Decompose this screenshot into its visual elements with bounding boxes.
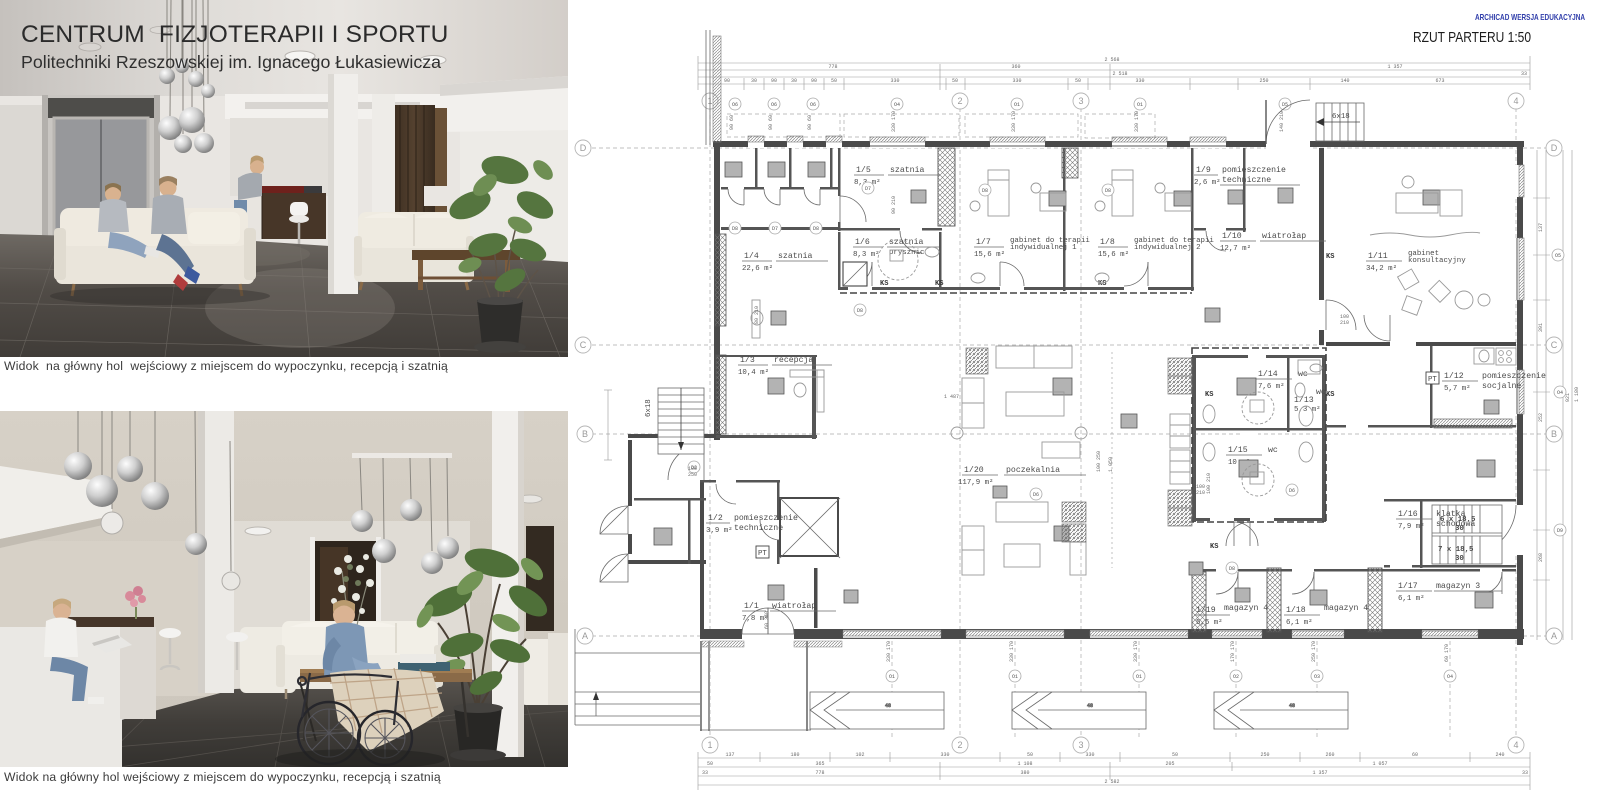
svg-text:330: 330	[1085, 752, 1094, 758]
svg-text:50: 50	[831, 78, 837, 84]
svg-text:250: 250	[688, 472, 697, 478]
svg-text:330 170: 330 170	[1133, 641, 1139, 662]
svg-text:C: C	[580, 340, 587, 350]
svg-text:O1: O1	[1136, 674, 1142, 680]
svg-text:1 057: 1 057	[1372, 761, 1387, 767]
svg-text:2: 2	[957, 740, 962, 750]
svg-text:KS: KS	[935, 280, 943, 288]
svg-text:1: 1	[707, 740, 712, 750]
svg-text:33: 33	[702, 770, 708, 776]
svg-text:1/6: 1/6	[855, 237, 870, 247]
svg-text:wiatrołap: wiatrołap	[772, 601, 816, 611]
svg-text:50: 50	[707, 761, 713, 767]
svg-text:1/19: 1/19	[1196, 605, 1216, 615]
svg-text:30: 30	[791, 78, 797, 84]
svg-text:wc: wc	[1268, 446, 1278, 455]
svg-text:673: 673	[1435, 78, 1444, 84]
svg-text:2,6 m²: 2,6 m²	[1194, 178, 1221, 187]
svg-text:102: 102	[855, 752, 864, 758]
svg-text:1/10: 1/10	[1222, 231, 1242, 241]
svg-text:A: A	[1551, 631, 1557, 641]
svg-text:KS: KS	[1326, 391, 1334, 399]
svg-text:PT: PT	[1428, 376, 1437, 384]
svg-text:2: 2	[957, 96, 962, 106]
svg-text:1/13: 1/13	[1294, 395, 1314, 405]
svg-text:D8: D8	[813, 226, 819, 232]
svg-text:330: 330	[890, 78, 899, 84]
svg-text:268: 268	[1538, 553, 1544, 562]
svg-text:O6: O6	[771, 102, 777, 108]
svg-text:poczekalnia: poczekalnia	[1006, 465, 1060, 475]
svg-text:7,8 m²: 7,8 m²	[742, 614, 769, 623]
svg-text:1 357: 1 357	[1387, 64, 1402, 70]
svg-text:137: 137	[1538, 223, 1544, 232]
svg-text:magazyn 4: magazyn 4	[1324, 604, 1368, 613]
svg-text:KS: KS	[1210, 543, 1218, 551]
svg-text:48: 48	[885, 703, 891, 709]
svg-text:Politechniki Rzeszowskiej im.: Politechniki Rzeszowskiej im. Ignacego Ł…	[21, 52, 441, 72]
svg-text:240: 240	[1495, 752, 1504, 758]
svg-text:CENTRUM FIZJOTERAPII I SPORTU: CENTRUM FIZJOTERAPII I SPORTU	[21, 21, 449, 48]
svg-text:391: 391	[1538, 323, 1544, 332]
svg-text:260: 260	[1325, 752, 1334, 758]
svg-text:PT: PT	[758, 550, 767, 558]
svg-text:4: 4	[1513, 740, 1518, 750]
svg-text:778: 778	[815, 770, 824, 776]
svg-text:170 170: 170 170	[1230, 641, 1236, 662]
svg-text:D8: D8	[732, 226, 738, 232]
svg-text:O6: O6	[810, 102, 816, 108]
svg-text:szatnia: szatnia	[890, 165, 924, 175]
svg-text:D: D	[580, 143, 587, 153]
svg-text:ARCHICAD WERSJA EDUKACYJNA: ARCHICAD WERSJA EDUKACYJNA	[1475, 12, 1585, 22]
svg-text:D5: D5	[1282, 102, 1288, 108]
svg-text:90: 90	[771, 78, 777, 84]
svg-text:6,1 m²: 6,1 m²	[1286, 618, 1313, 627]
svg-text:48: 48	[1289, 703, 1295, 709]
svg-text:365: 365	[815, 761, 824, 767]
svg-text:137: 137	[725, 752, 734, 758]
svg-text:O3: O3	[1314, 674, 1320, 680]
svg-text:1/20: 1/20	[964, 465, 984, 475]
svg-text:1/14: 1/14	[1258, 369, 1278, 379]
svg-text:1/16: 1/16	[1398, 509, 1418, 519]
svg-text:1/18: 1/18	[1286, 605, 1306, 615]
svg-text:D8: D8	[1105, 188, 1111, 194]
svg-text:indywidualnej 1: indywidualnej 1	[1010, 244, 1077, 252]
svg-text:117,9 m²: 117,9 m²	[958, 478, 993, 487]
svg-text:90 210: 90 210	[891, 196, 897, 214]
svg-text:wc: wc	[1298, 370, 1308, 379]
svg-text:2 582: 2 582	[1104, 779, 1119, 785]
svg-text:pomieszczenie: pomieszczenie	[734, 513, 798, 523]
svg-text:6,1 m²: 6,1 m²	[1398, 594, 1425, 603]
svg-text:KS: KS	[880, 280, 888, 288]
svg-text:wiatrołap: wiatrołap	[1262, 231, 1306, 241]
svg-text:60 170: 60 170	[1444, 644, 1450, 662]
svg-text:33: 33	[1522, 770, 1528, 776]
svg-text:6x18: 6x18	[1332, 113, 1350, 121]
svg-text:C: C	[1551, 340, 1558, 350]
svg-text:50: 50	[952, 78, 958, 84]
svg-text:140 210: 140 210	[1279, 111, 1285, 132]
svg-text:330 170: 330 170	[1134, 111, 1140, 132]
svg-text:D8: D8	[982, 188, 988, 194]
svg-text:1/15: 1/15	[1228, 445, 1248, 455]
svg-text:90: 90	[811, 78, 817, 84]
svg-text:50: 50	[1172, 752, 1178, 758]
svg-text:80 210: 80 210	[754, 306, 760, 324]
svg-text:5,7 m²: 5,7 m²	[1444, 384, 1471, 393]
svg-text:330 170: 330 170	[1009, 641, 1015, 662]
svg-text:2 568: 2 568	[1104, 57, 1119, 63]
svg-text:50: 50	[1075, 78, 1081, 84]
svg-text:pomieszczenie: pomieszczenie	[1222, 165, 1286, 175]
svg-text:4: 4	[1513, 96, 1518, 106]
svg-text:22,6 m²: 22,6 m²	[742, 264, 773, 273]
svg-text:magazyn 4: magazyn 4	[1224, 604, 1268, 613]
svg-text:D7: D7	[772, 226, 778, 232]
svg-text:1/2: 1/2	[708, 513, 723, 523]
svg-text:250 170: 250 170	[1311, 641, 1317, 662]
svg-text:1/1: 1/1	[744, 601, 759, 611]
svg-text:O4: O4	[1447, 674, 1453, 680]
svg-text:1 050: 1 050	[1108, 457, 1114, 472]
svg-text:180: 180	[790, 752, 799, 758]
svg-text:O1: O1	[1012, 674, 1018, 680]
svg-text:48: 48	[1087, 703, 1093, 709]
svg-text:1/5: 1/5	[856, 165, 871, 175]
svg-text:205: 205	[1165, 761, 1174, 767]
svg-text:B: B	[582, 429, 588, 439]
svg-text:330: 330	[1135, 78, 1144, 84]
svg-text:30: 30	[1455, 555, 1464, 563]
svg-text:1/8: 1/8	[1100, 237, 1115, 247]
svg-text:7,6 m²: 7,6 m²	[1258, 382, 1285, 391]
svg-text:12,7 m²: 12,7 m²	[1220, 244, 1251, 253]
svg-text:90 60: 90 60	[768, 115, 774, 130]
svg-text:pomieszczenie: pomieszczenie	[1482, 371, 1546, 381]
svg-text:KS: KS	[1326, 253, 1334, 261]
svg-text:recepcja: recepcja	[774, 355, 813, 365]
svg-text:indywidualnej 2: indywidualnej 2	[1134, 244, 1201, 252]
svg-text:5,6 m²: 5,6 m²	[1196, 618, 1223, 627]
svg-text:10,4 m²: 10,4 m²	[738, 368, 769, 377]
svg-text:1 180: 1 180	[1574, 387, 1580, 402]
svg-text:90: 90	[724, 78, 730, 84]
svg-text:7,9 m²: 7,9 m²	[1398, 522, 1425, 531]
svg-text:D8: D8	[1229, 566, 1235, 572]
svg-text:1/17: 1/17	[1398, 581, 1418, 591]
svg-text:techniczne: techniczne	[734, 523, 783, 533]
svg-text:D7: D7	[865, 186, 871, 192]
svg-text:O5: O5	[1555, 253, 1561, 259]
svg-text:D: D	[1551, 143, 1558, 153]
svg-text:33: 33	[1521, 71, 1527, 77]
svg-text:D6: D6	[1033, 492, 1039, 498]
svg-text:30: 30	[751, 78, 757, 84]
svg-text:330 170: 330 170	[891, 111, 897, 132]
svg-text:wc: wc	[1316, 388, 1326, 397]
svg-text:1/7: 1/7	[976, 237, 991, 247]
svg-text:RZUT PARTERU 1:50: RZUT PARTERU 1:50	[1413, 29, 1531, 46]
svg-text:O4: O4	[1557, 390, 1563, 396]
svg-text:330 170: 330 170	[886, 641, 892, 662]
svg-text:klatka: klatka	[1436, 509, 1466, 519]
svg-text:3,9 m²: 3,9 m²	[706, 526, 733, 535]
svg-text:360: 360	[1011, 64, 1020, 70]
svg-text:B: B	[1551, 429, 1557, 439]
svg-text:34,2 m²: 34,2 m²	[1366, 264, 1397, 273]
svg-text:100 210: 100 210	[1206, 473, 1212, 494]
svg-text:magazyn 3: magazyn 3	[1436, 582, 1480, 591]
svg-text:1 487: 1 487	[944, 394, 959, 400]
svg-text:8,3 m²: 8,3 m²	[853, 250, 880, 259]
svg-text:O1: O1	[1137, 102, 1143, 108]
svg-text:D6: D6	[1289, 488, 1295, 494]
svg-text:778: 778	[828, 64, 837, 70]
svg-text:1 108: 1 108	[1017, 761, 1032, 767]
svg-text:140: 140	[1340, 78, 1349, 84]
svg-text:252: 252	[1538, 413, 1544, 422]
svg-text:330 170: 330 170	[1011, 111, 1017, 132]
svg-text:1/3: 1/3	[740, 355, 755, 365]
svg-text:3: 3	[1078, 96, 1083, 106]
svg-text:380: 380	[1020, 770, 1029, 776]
svg-text:konsultacyjny: konsultacyjny	[1408, 257, 1466, 265]
svg-text:O2: O2	[1233, 674, 1239, 680]
svg-text:250: 250	[1260, 752, 1269, 758]
svg-text:3: 3	[1078, 740, 1083, 750]
svg-text:O6: O6	[732, 102, 738, 108]
svg-text:szatnia: szatnia	[778, 251, 812, 261]
svg-text:O1: O1	[889, 674, 895, 680]
svg-text:techniczne: techniczne	[1222, 175, 1271, 185]
svg-text:210: 210	[1196, 490, 1205, 496]
svg-text:100 250: 100 250	[1096, 451, 1102, 472]
svg-text:6x18: 6x18	[645, 399, 653, 417]
svg-text:D9: D9	[1557, 528, 1563, 534]
svg-text:KS: KS	[1098, 280, 1106, 288]
svg-text:1 357: 1 357	[1312, 770, 1327, 776]
svg-text:330: 330	[940, 752, 949, 758]
svg-text:1/12: 1/12	[1444, 371, 1464, 381]
svg-text:1/11: 1/11	[1368, 251, 1388, 261]
svg-text:15,6 m²: 15,6 m²	[974, 250, 1005, 259]
svg-text:D8: D8	[857, 308, 863, 314]
svg-text:250: 250	[1259, 78, 1268, 84]
svg-text:1/4: 1/4	[744, 251, 759, 261]
svg-text:90 60: 90 60	[729, 115, 735, 130]
svg-text:330: 330	[1012, 78, 1021, 84]
svg-text:O4: O4	[894, 102, 900, 108]
svg-text:KS: KS	[1205, 391, 1213, 399]
svg-text:2 518: 2 518	[1112, 71, 1127, 77]
svg-text:60: 60	[1412, 752, 1418, 758]
svg-text:50: 50	[1027, 752, 1033, 758]
svg-text:210: 210	[1340, 320, 1349, 326]
svg-text:1/9: 1/9	[1196, 165, 1211, 175]
svg-text:socjalne: socjalne	[1482, 381, 1521, 391]
svg-text:15,6 m²: 15,6 m²	[1098, 250, 1129, 259]
svg-text:A: A	[582, 631, 588, 641]
svg-text:schodowa: schodowa	[1436, 519, 1475, 529]
svg-text:O1: O1	[1014, 102, 1020, 108]
svg-text:7 x 18,5: 7 x 18,5	[1438, 546, 1474, 554]
svg-text:90 60: 90 60	[807, 115, 813, 130]
